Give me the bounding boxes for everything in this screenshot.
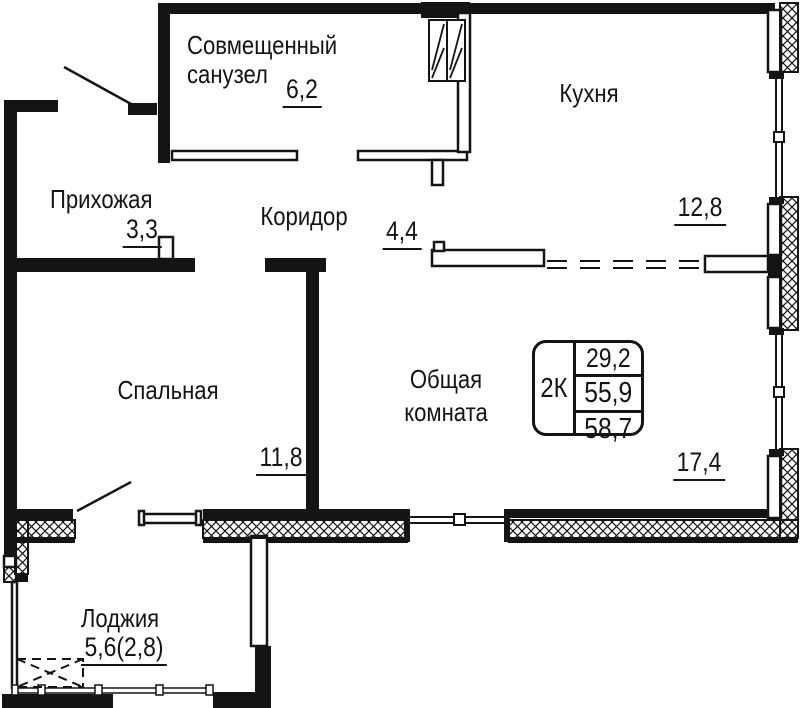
apartment-areas-cells: 29,2 55,9 58,7 [576,343,641,433]
room-area-living-room: 17,4 [673,449,724,481]
apartment-info-box: 2К 29,2 55,9 58,7 [532,340,644,436]
floor-plan: Совмещенный санузел 6,2 Кухня 12,8 Прихо… [0,0,800,708]
room-area-loggia: 5,6(2,8) [81,634,167,666]
room-label-living-room: Общая комната [374,363,519,429]
room-label-corridor: Коридор [260,202,347,231]
room-area-corridor: 4,4 [383,218,422,250]
room-area-hallway: 3,3 [123,216,162,248]
room-label-hallway: Прихожая [50,185,152,214]
window-marker [774,387,784,397]
walls-outlined [4,10,781,688]
entrance-door-swing [64,67,131,104]
loggia-door-swing [77,482,131,511]
apartment-type: 2К [540,372,567,404]
room-area-bedroom: 11,8 [256,444,306,476]
info-value-2: 55,9 [584,377,632,410]
room-label-kitchen: Кухня [559,79,618,108]
loggia-dashed-box [17,659,83,687]
vent-shaft-icon [429,20,465,81]
info-row: 29,2 [576,343,641,374]
room-area-bathroom: 6,2 [283,76,322,108]
floor-plan-drawing [0,0,800,708]
info-row: 55,9 [576,374,641,410]
room-label-bedroom: Спальная [117,376,218,405]
walls-hatched [4,3,798,582]
info-value-1: 29,2 [586,343,631,374]
loggia-glazing [12,685,213,695]
info-value-3: 58,7 [584,413,632,446]
room-area-kitchen: 12,8 [674,194,725,226]
door-swings [64,67,131,511]
window-marker [774,132,784,142]
window-marker [454,514,465,525]
info-row: 58,7 [576,410,641,446]
apartment-type-cell: 2К [535,343,576,433]
room-label-loggia: Лоджия [81,604,159,633]
